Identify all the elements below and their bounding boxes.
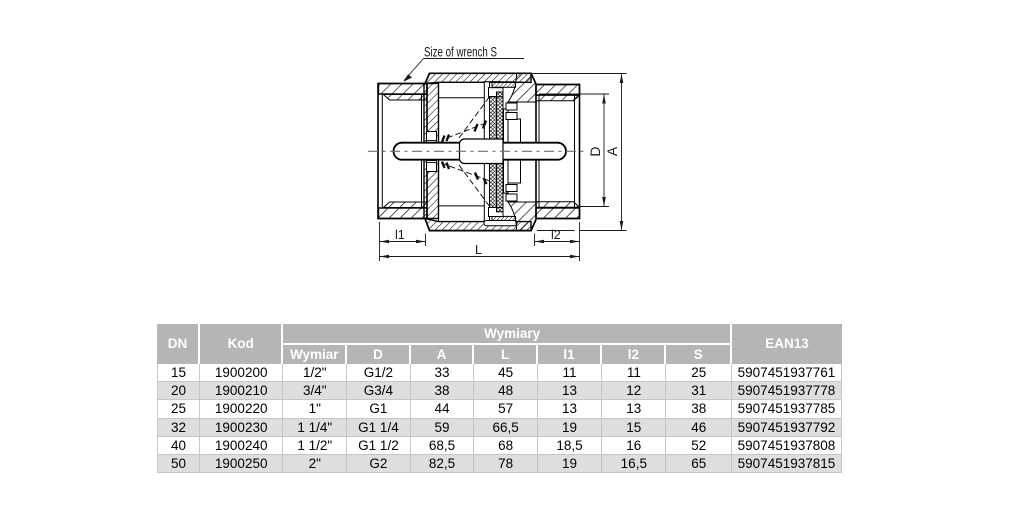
svg-text:L: L [475,243,482,257]
svg-text:Size of wrench S: Size of wrench S [424,45,497,60]
svg-text:A: A [604,146,620,156]
svg-text:l1: l1 [395,228,405,242]
svg-text:D: D [587,146,603,156]
svg-text:l2: l2 [551,228,561,242]
